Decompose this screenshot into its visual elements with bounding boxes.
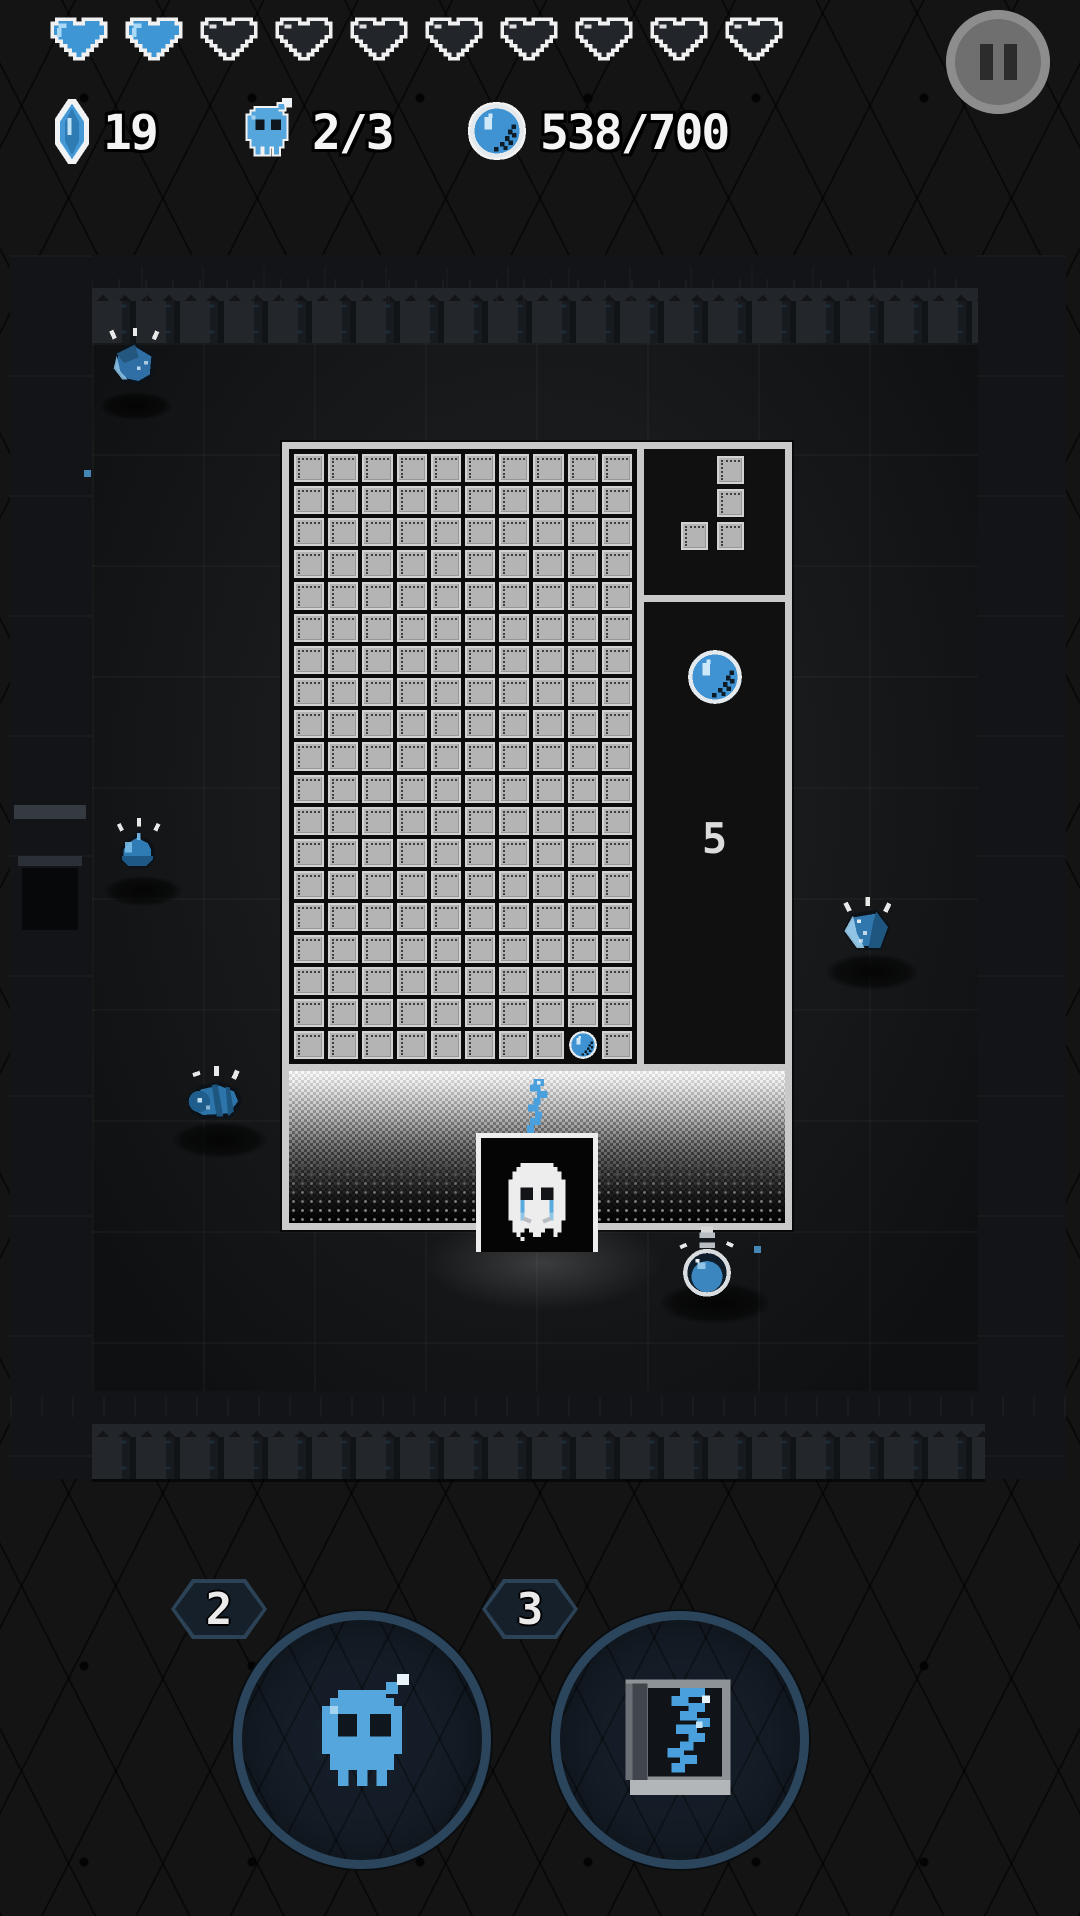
block-tile: [430, 966, 462, 996]
block-tile: [361, 485, 393, 515]
block-tile: [327, 709, 359, 739]
block-tile: [464, 517, 496, 547]
block-tile: [361, 870, 393, 900]
block-tile: [567, 902, 599, 932]
shell-snail: [178, 1066, 252, 1136]
block-tile: [567, 549, 599, 579]
block-tile: [498, 1030, 530, 1060]
block-tile: [601, 838, 633, 868]
next-piece-panel: [644, 449, 785, 595]
block-tile: [327, 966, 359, 996]
block-tile: [498, 581, 530, 611]
block-tile: [464, 870, 496, 900]
block-tile: [601, 453, 633, 483]
block-tile: [293, 613, 325, 643]
block-tile: [430, 806, 462, 836]
block-tile: [532, 645, 564, 675]
block-tile: [361, 1030, 393, 1060]
block-tile: [361, 645, 393, 675]
block-tile: [396, 581, 428, 611]
heart-empty-icon: [273, 12, 335, 66]
drop-slime: [108, 818, 170, 884]
block-tile: [327, 581, 359, 611]
spell-book-icon: [613, 1668, 747, 1812]
block-tile: [567, 453, 599, 483]
block-tile: [430, 902, 462, 932]
block-tile: [430, 485, 462, 515]
block-tile: [498, 966, 530, 996]
block-tile: [361, 549, 393, 579]
block-tile: [498, 774, 530, 804]
block-tile: [498, 709, 530, 739]
block-tile: [532, 998, 564, 1028]
block-tile: [293, 645, 325, 675]
block-tile: [464, 485, 496, 515]
block-tile: [498, 549, 530, 579]
block-tile: [293, 806, 325, 836]
skull-bomb-ability-button[interactable]: [233, 1611, 491, 1869]
block-tile: [327, 741, 359, 771]
block-tile: [532, 838, 564, 868]
block-tile: [601, 549, 633, 579]
block-tile: [464, 838, 496, 868]
orb-icon: [468, 102, 526, 164]
block-tile: [532, 581, 564, 611]
block-tile: [396, 998, 428, 1028]
heart-empty-icon: [423, 12, 485, 66]
block-tile: [498, 677, 530, 707]
block-tile: [464, 453, 496, 483]
block-tile: [430, 838, 462, 868]
block-tile: [361, 806, 393, 836]
block-tile: [464, 1030, 496, 1060]
block-tile: [498, 645, 530, 675]
block-tile: [396, 902, 428, 932]
block-tile: [498, 838, 530, 868]
block-tile: [327, 998, 359, 1028]
heart-empty-icon: [573, 12, 635, 66]
block-tile: [361, 902, 393, 932]
heart-empty-icon: [348, 12, 410, 66]
block-tile: [293, 966, 325, 996]
block-tile: [293, 453, 325, 483]
block-tile: [601, 517, 633, 547]
block-tile: [361, 774, 393, 804]
block-tile: [532, 934, 564, 964]
block-tile: [464, 774, 496, 804]
launch-strip: [289, 1071, 785, 1223]
block-tile: [498, 902, 530, 932]
block-tile: [601, 806, 633, 836]
block-tile: [396, 645, 428, 675]
block-tile: [464, 902, 496, 932]
block-tile: [498, 870, 530, 900]
block-tile: [532, 870, 564, 900]
block-tile: [396, 1030, 428, 1060]
right-wall: [978, 255, 1066, 1479]
spell-book-count-badge: 3: [482, 1579, 578, 1639]
block-tile: [430, 645, 462, 675]
block-tile: [567, 485, 599, 515]
block-tile: [293, 485, 325, 515]
block-tile: [567, 581, 599, 611]
block-tile: [498, 806, 530, 836]
block-tile: [532, 966, 564, 996]
block-tile: [601, 1030, 633, 1060]
block-tile: [327, 645, 359, 675]
pause-icon: [980, 44, 993, 80]
heart-empty-icon: [723, 12, 785, 66]
block-tile: [601, 998, 633, 1028]
block-tile: [327, 902, 359, 932]
block-tile: [430, 677, 462, 707]
block-tile: [464, 677, 496, 707]
block-tile: [396, 934, 428, 964]
block-tile: [532, 613, 564, 643]
health-hearts: [48, 12, 785, 66]
grid-ball: [567, 1030, 599, 1060]
block-tile: [361, 934, 393, 964]
block-tile: [532, 806, 564, 836]
block-tile: [601, 677, 633, 707]
block-tile: [601, 902, 633, 932]
block-tile: [396, 774, 428, 804]
block-tile: [567, 966, 599, 996]
block-tile: [361, 838, 393, 868]
block-tile: [327, 485, 359, 515]
top-wall-battlements: [92, 301, 985, 343]
block-tile: [567, 677, 599, 707]
block-tile: [464, 741, 496, 771]
block-tile: [361, 453, 393, 483]
block-tile: [567, 517, 599, 547]
block-tile: [293, 934, 325, 964]
puzzle-board: 5: [282, 442, 792, 1230]
heart-empty-icon: [498, 12, 560, 66]
block-tile: [532, 1030, 564, 1060]
block-tile: [498, 741, 530, 771]
block-tile: [361, 677, 393, 707]
block-tile: [498, 998, 530, 1028]
preview-block: [680, 521, 709, 551]
block-tile: [396, 741, 428, 771]
block-tile: [464, 934, 496, 964]
block-tile: [532, 677, 564, 707]
block-tile: [498, 934, 530, 964]
heart-empty-icon: [648, 12, 710, 66]
block-tile: [567, 870, 599, 900]
block-tile: [601, 870, 633, 900]
blue-particle: [754, 1246, 761, 1253]
block-tile: [430, 774, 462, 804]
dice-slime: [102, 328, 168, 398]
block-tile: [430, 870, 462, 900]
block-tile: [293, 741, 325, 771]
block-tile: [293, 1030, 325, 1060]
block-tile: [464, 806, 496, 836]
block-tile: [430, 741, 462, 771]
preview-block: [716, 455, 745, 485]
block-tile: [601, 934, 633, 964]
block-tile: [464, 998, 496, 1028]
block-tile: [567, 645, 599, 675]
block-tile: [601, 645, 633, 675]
block-tile: [532, 517, 564, 547]
block-tile: [293, 677, 325, 707]
gem-counter: 19: [55, 98, 157, 168]
block-tile: [532, 774, 564, 804]
block-tile: [361, 741, 393, 771]
skull-bomb-count-badge: 2: [171, 1579, 267, 1639]
block-tile: [396, 966, 428, 996]
block-tile: [532, 741, 564, 771]
pause-button[interactable]: [946, 10, 1050, 114]
block-grid: [289, 449, 637, 1064]
block-tile: [498, 613, 530, 643]
block-tile: [396, 709, 428, 739]
block-tile: [567, 998, 599, 1028]
block-tile: [327, 613, 359, 643]
block-tile: [293, 870, 325, 900]
crystal-slime: [832, 896, 902, 970]
block-tile: [430, 517, 462, 547]
blue-particle: [84, 470, 91, 477]
heart-filled-icon: [48, 12, 110, 66]
block-tile: [293, 902, 325, 932]
block-tile: [396, 549, 428, 579]
block-tile: [464, 549, 496, 579]
block-tile: [498, 517, 530, 547]
block-tile: [601, 709, 633, 739]
ghost-alcove: [476, 1133, 598, 1252]
block-tile: [361, 966, 393, 996]
block-tile: [327, 806, 359, 836]
block-tile: [293, 838, 325, 868]
skull-bomb-icon: [236, 100, 298, 166]
block-tile: [293, 998, 325, 1028]
block-tile: [327, 517, 359, 547]
block-tile: [327, 870, 359, 900]
game-screen: 19 2/3 538/700: [0, 0, 1080, 1916]
block-tile: [601, 485, 633, 515]
block-tile: [464, 709, 496, 739]
block-tile: [532, 549, 564, 579]
block-tile: [396, 453, 428, 483]
skull-counter: 2/3: [236, 98, 393, 168]
block-tile: [430, 998, 462, 1028]
block-tile: [498, 453, 530, 483]
block-tile: [498, 485, 530, 515]
block-tile: [293, 774, 325, 804]
block-tile: [430, 613, 462, 643]
block-tile: [567, 934, 599, 964]
preview-block: [716, 521, 745, 551]
block-tile: [601, 741, 633, 771]
block-tile: [396, 517, 428, 547]
orb-counter: 538/700: [468, 98, 728, 168]
block-tile: [361, 581, 393, 611]
block-tile: [430, 581, 462, 611]
crystal-icon: [55, 101, 89, 166]
block-tile: [361, 613, 393, 643]
block-tile: [327, 838, 359, 868]
potion-flask: [676, 1226, 738, 1308]
block-tile: [361, 998, 393, 1028]
ball-count-panel: 5: [644, 602, 785, 1064]
ghost-character: [496, 1158, 578, 1250]
block-tile: [293, 581, 325, 611]
block-tile: [601, 774, 633, 804]
block-tile: [567, 806, 599, 836]
heart-filled-icon: [123, 12, 185, 66]
block-tile: [601, 581, 633, 611]
block-tile: [327, 1030, 359, 1060]
block-tile: [532, 453, 564, 483]
block-tile: [567, 709, 599, 739]
block-tile: [430, 934, 462, 964]
block-tile: [430, 453, 462, 483]
block-tile: [327, 677, 359, 707]
block-tile: [464, 966, 496, 996]
block-tile: [464, 645, 496, 675]
block-tile: [464, 613, 496, 643]
block-tile: [567, 838, 599, 868]
orb-icon: [686, 648, 744, 710]
block-tile: [293, 517, 325, 547]
block-tile: [601, 966, 633, 996]
heart-empty-icon: [198, 12, 260, 66]
block-tile: [532, 902, 564, 932]
block-tile: [601, 613, 633, 643]
block-tile: [327, 934, 359, 964]
block-tile: [396, 677, 428, 707]
block-tile: [327, 774, 359, 804]
block-tile: [361, 517, 393, 547]
block-tile: [327, 549, 359, 579]
block-tile: [396, 870, 428, 900]
skull-count: 2/3: [312, 98, 393, 168]
ball-count-value: 5: [702, 814, 727, 863]
block-tile: [396, 485, 428, 515]
block-tile: [396, 838, 428, 868]
orb-count: 538/700: [540, 98, 728, 168]
left-wall-gate: [10, 770, 90, 935]
block-tile: [567, 774, 599, 804]
block-tile: [430, 1030, 462, 1060]
block-tile: [361, 709, 393, 739]
block-tile: [464, 581, 496, 611]
block-tile: [532, 709, 564, 739]
block-tile: [567, 741, 599, 771]
gem-count: 19: [103, 98, 157, 168]
spell-book-ability-button[interactable]: [551, 1611, 809, 1869]
block-tile: [396, 806, 428, 836]
pause-icon: [1004, 44, 1017, 80]
block-tile: [293, 549, 325, 579]
block-tile: [532, 485, 564, 515]
block-tile: [396, 613, 428, 643]
block-tile: [430, 549, 462, 579]
preview-block: [716, 488, 745, 518]
skull-bomb-icon: [298, 1674, 426, 1806]
bottom-wall-battlements: [92, 1437, 985, 1479]
block-tile: [567, 613, 599, 643]
block-tile: [327, 453, 359, 483]
block-tile: [293, 709, 325, 739]
block-tile: [430, 709, 462, 739]
